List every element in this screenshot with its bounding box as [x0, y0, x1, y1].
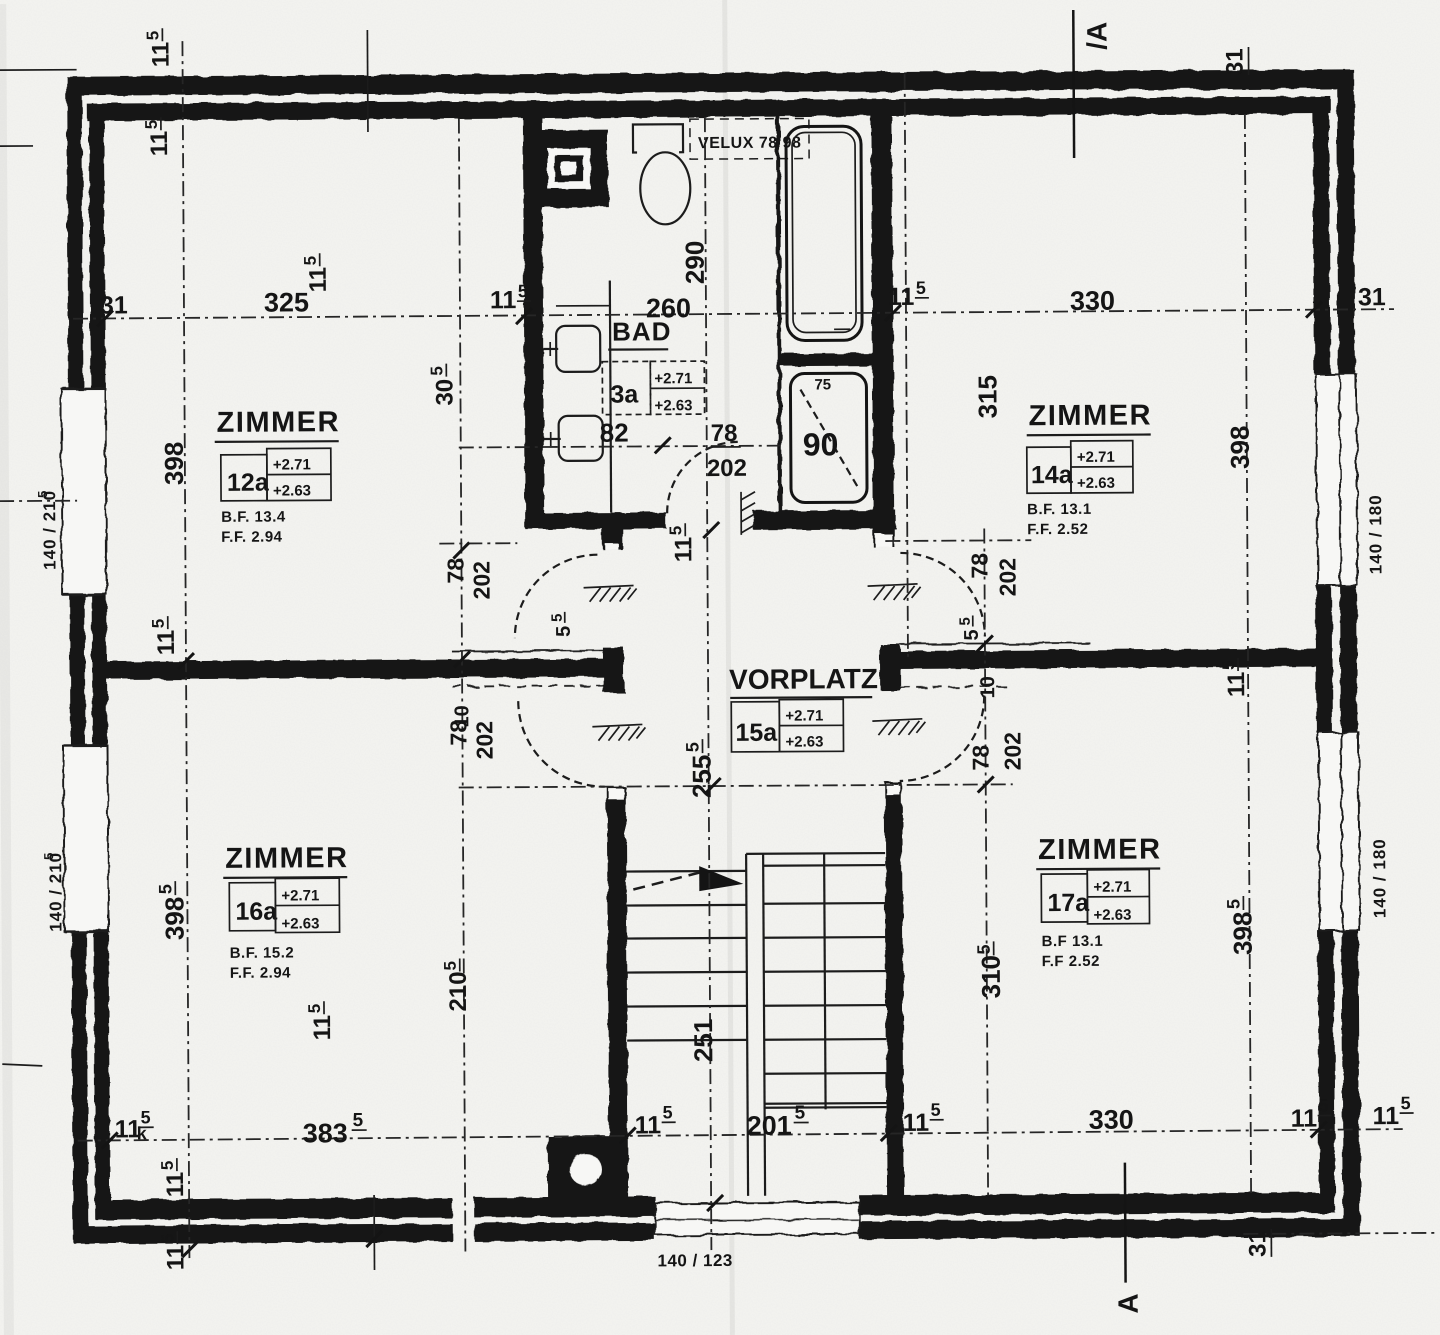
svg-text:78: 78 — [442, 558, 468, 584]
svg-text:5: 5 — [663, 1102, 673, 1122]
svg-text:+2.63: +2.63 — [1093, 907, 1131, 924]
svg-text:A: A — [1113, 1293, 1144, 1313]
svg-text:202: 202 — [999, 732, 1025, 771]
svg-text:11: 11 — [1291, 1105, 1318, 1133]
svg-text:/A: /A — [1081, 22, 1112, 50]
svg-text:78: 78 — [711, 420, 738, 447]
svg-text:251: 251 — [688, 1019, 718, 1063]
svg-text:+2.63: +2.63 — [1077, 475, 1115, 492]
svg-text:5: 5 — [795, 1103, 806, 1124]
svg-text:5: 5 — [916, 278, 926, 298]
svg-text:5: 5 — [957, 617, 974, 625]
svg-text:5: 5 — [1401, 1093, 1411, 1113]
svg-text:5: 5 — [1219, 661, 1238, 671]
svg-text:11: 11 — [903, 1109, 930, 1137]
svg-text:16a: 16a — [235, 898, 278, 926]
svg-text:5: 5 — [35, 491, 50, 498]
svg-text:10: 10 — [451, 705, 473, 727]
svg-text:5: 5 — [974, 944, 994, 954]
svg-text:11: 11 — [146, 131, 173, 157]
svg-text:12a: 12a — [227, 469, 270, 497]
svg-text:315: 315 — [972, 375, 1002, 419]
svg-text:30: 30 — [431, 379, 458, 406]
svg-text:F.F. 2.94: F.F. 2.94 — [230, 964, 291, 981]
svg-text:31: 31 — [100, 291, 128, 319]
svg-text:31: 31 — [1358, 283, 1386, 311]
svg-text:17a: 17a — [1047, 889, 1090, 917]
svg-text:+2.63: +2.63 — [273, 482, 311, 499]
svg-text:B.F 13.1: B.F 13.1 — [1042, 933, 1104, 950]
svg-text:5: 5 — [427, 366, 446, 376]
svg-text:5: 5 — [158, 1161, 177, 1171]
svg-text:11: 11 — [635, 1111, 662, 1139]
svg-text:398: 398 — [159, 897, 189, 941]
svg-text:325: 325 — [264, 287, 309, 317]
svg-text:B.F. 13.4: B.F. 13.4 — [221, 508, 286, 525]
svg-text:5: 5 — [961, 629, 983, 640]
svg-text:ZIMMER: ZIMMER — [1029, 400, 1153, 433]
svg-text:140 / 210: 140 / 210 — [40, 490, 59, 570]
svg-text:+2.71: +2.71 — [1077, 449, 1115, 466]
svg-text:10: 10 — [977, 676, 999, 698]
svg-text:202: 202 — [468, 561, 494, 600]
svg-text:F.F. 2.94: F.F. 2.94 — [221, 529, 282, 546]
svg-text:F.F. 2.52: F.F. 2.52 — [1027, 521, 1088, 538]
svg-text:290: 290 — [680, 241, 710, 285]
svg-text:+2.71: +2.71 — [785, 707, 823, 724]
svg-text:5: 5 — [149, 619, 168, 629]
svg-text:11: 11 — [305, 267, 332, 293]
svg-text:+2.71: +2.71 — [1093, 879, 1131, 896]
svg-text:B.F. 13.1: B.F. 13.1 — [1027, 501, 1092, 518]
svg-text:31: 31 — [1244, 1230, 1271, 1257]
svg-text:k: k — [137, 1123, 148, 1143]
svg-text:ZIMMER: ZIMMER — [225, 842, 349, 875]
svg-text:398: 398 — [1225, 426, 1255, 470]
svg-text:VORPLATZ: VORPLATZ — [729, 663, 878, 695]
svg-text:+2.63: +2.63 — [654, 397, 692, 414]
svg-text:330: 330 — [1070, 286, 1115, 316]
svg-text:82: 82 — [600, 418, 629, 448]
svg-text:5: 5 — [441, 961, 460, 971]
svg-text:5: 5 — [155, 884, 175, 894]
svg-text:210: 210 — [445, 971, 472, 1011]
svg-text:ZIMMER: ZIMMER — [1038, 833, 1162, 866]
svg-text:78: 78 — [967, 745, 993, 771]
svg-text:+2.71: +2.71 — [281, 887, 319, 904]
svg-text:5: 5 — [553, 626, 575, 637]
svg-text:140 / 210: 140 / 210 — [46, 852, 65, 932]
svg-text:11: 11 — [309, 1015, 336, 1041]
svg-text:201: 201 — [747, 1111, 792, 1141]
svg-text:11: 11 — [153, 630, 180, 656]
svg-text:5: 5 — [666, 526, 685, 536]
svg-text:11: 11 — [147, 42, 174, 68]
svg-text:11: 11 — [1223, 672, 1250, 698]
svg-text:5: 5 — [931, 1100, 941, 1120]
svg-text:310: 310 — [976, 955, 1006, 999]
svg-text:31: 31 — [1221, 48, 1248, 75]
svg-text:383: 383 — [303, 1118, 348, 1148]
svg-text:11: 11 — [670, 537, 697, 563]
svg-text:5: 5 — [143, 31, 162, 41]
svg-text:90: 90 — [803, 426, 839, 462]
svg-text:398: 398 — [159, 442, 189, 486]
svg-text:F.F 2.52: F.F 2.52 — [1042, 953, 1100, 970]
svg-text:5: 5 — [682, 742, 702, 752]
svg-text:5: 5 — [41, 853, 56, 860]
svg-text:+2.71: +2.71 — [273, 456, 311, 473]
svg-text:202: 202 — [471, 721, 497, 760]
svg-text:ZIMMER: ZIMMER — [217, 406, 341, 439]
svg-text:78: 78 — [966, 553, 992, 579]
svg-text:5: 5 — [549, 614, 566, 622]
svg-text:11: 11 — [1373, 1102, 1400, 1130]
svg-text:140 / 180: 140 / 180 — [1366, 494, 1385, 574]
svg-text:5: 5 — [353, 1110, 364, 1131]
svg-text:5: 5 — [305, 1004, 324, 1014]
svg-text:202: 202 — [707, 455, 747, 482]
svg-text:5: 5 — [158, 1234, 177, 1244]
svg-text:75: 75 — [814, 376, 831, 393]
svg-text:330: 330 — [1089, 1105, 1134, 1135]
svg-text:5: 5 — [1223, 899, 1243, 909]
svg-text:11: 11 — [162, 1172, 189, 1198]
svg-text:5: 5 — [142, 120, 161, 130]
svg-text:255: 255 — [687, 755, 717, 799]
svg-text:15a: 15a — [735, 719, 778, 747]
svg-text:398: 398 — [1227, 912, 1257, 956]
svg-text:11: 11 — [162, 1245, 189, 1271]
svg-text:140 / 180: 140 / 180 — [1370, 838, 1389, 918]
svg-text:14a: 14a — [1031, 461, 1074, 489]
svg-text:5: 5 — [1319, 1096, 1329, 1116]
svg-text:+2.63: +2.63 — [785, 733, 823, 750]
svg-text:5: 5 — [518, 281, 528, 301]
svg-text:11: 11 — [490, 286, 517, 314]
svg-text:140 / 123: 140 / 123 — [657, 1251, 733, 1270]
svg-text:11: 11 — [888, 283, 915, 311]
svg-text:260: 260 — [646, 293, 691, 323]
svg-text:3a: 3a — [610, 380, 639, 408]
svg-text:5: 5 — [301, 256, 320, 266]
svg-text:202: 202 — [994, 558, 1020, 597]
svg-text:+2.71: +2.71 — [654, 370, 692, 387]
svg-text:+2.63: +2.63 — [281, 915, 319, 932]
svg-text:B.F. 15.2: B.F. 15.2 — [230, 944, 295, 961]
